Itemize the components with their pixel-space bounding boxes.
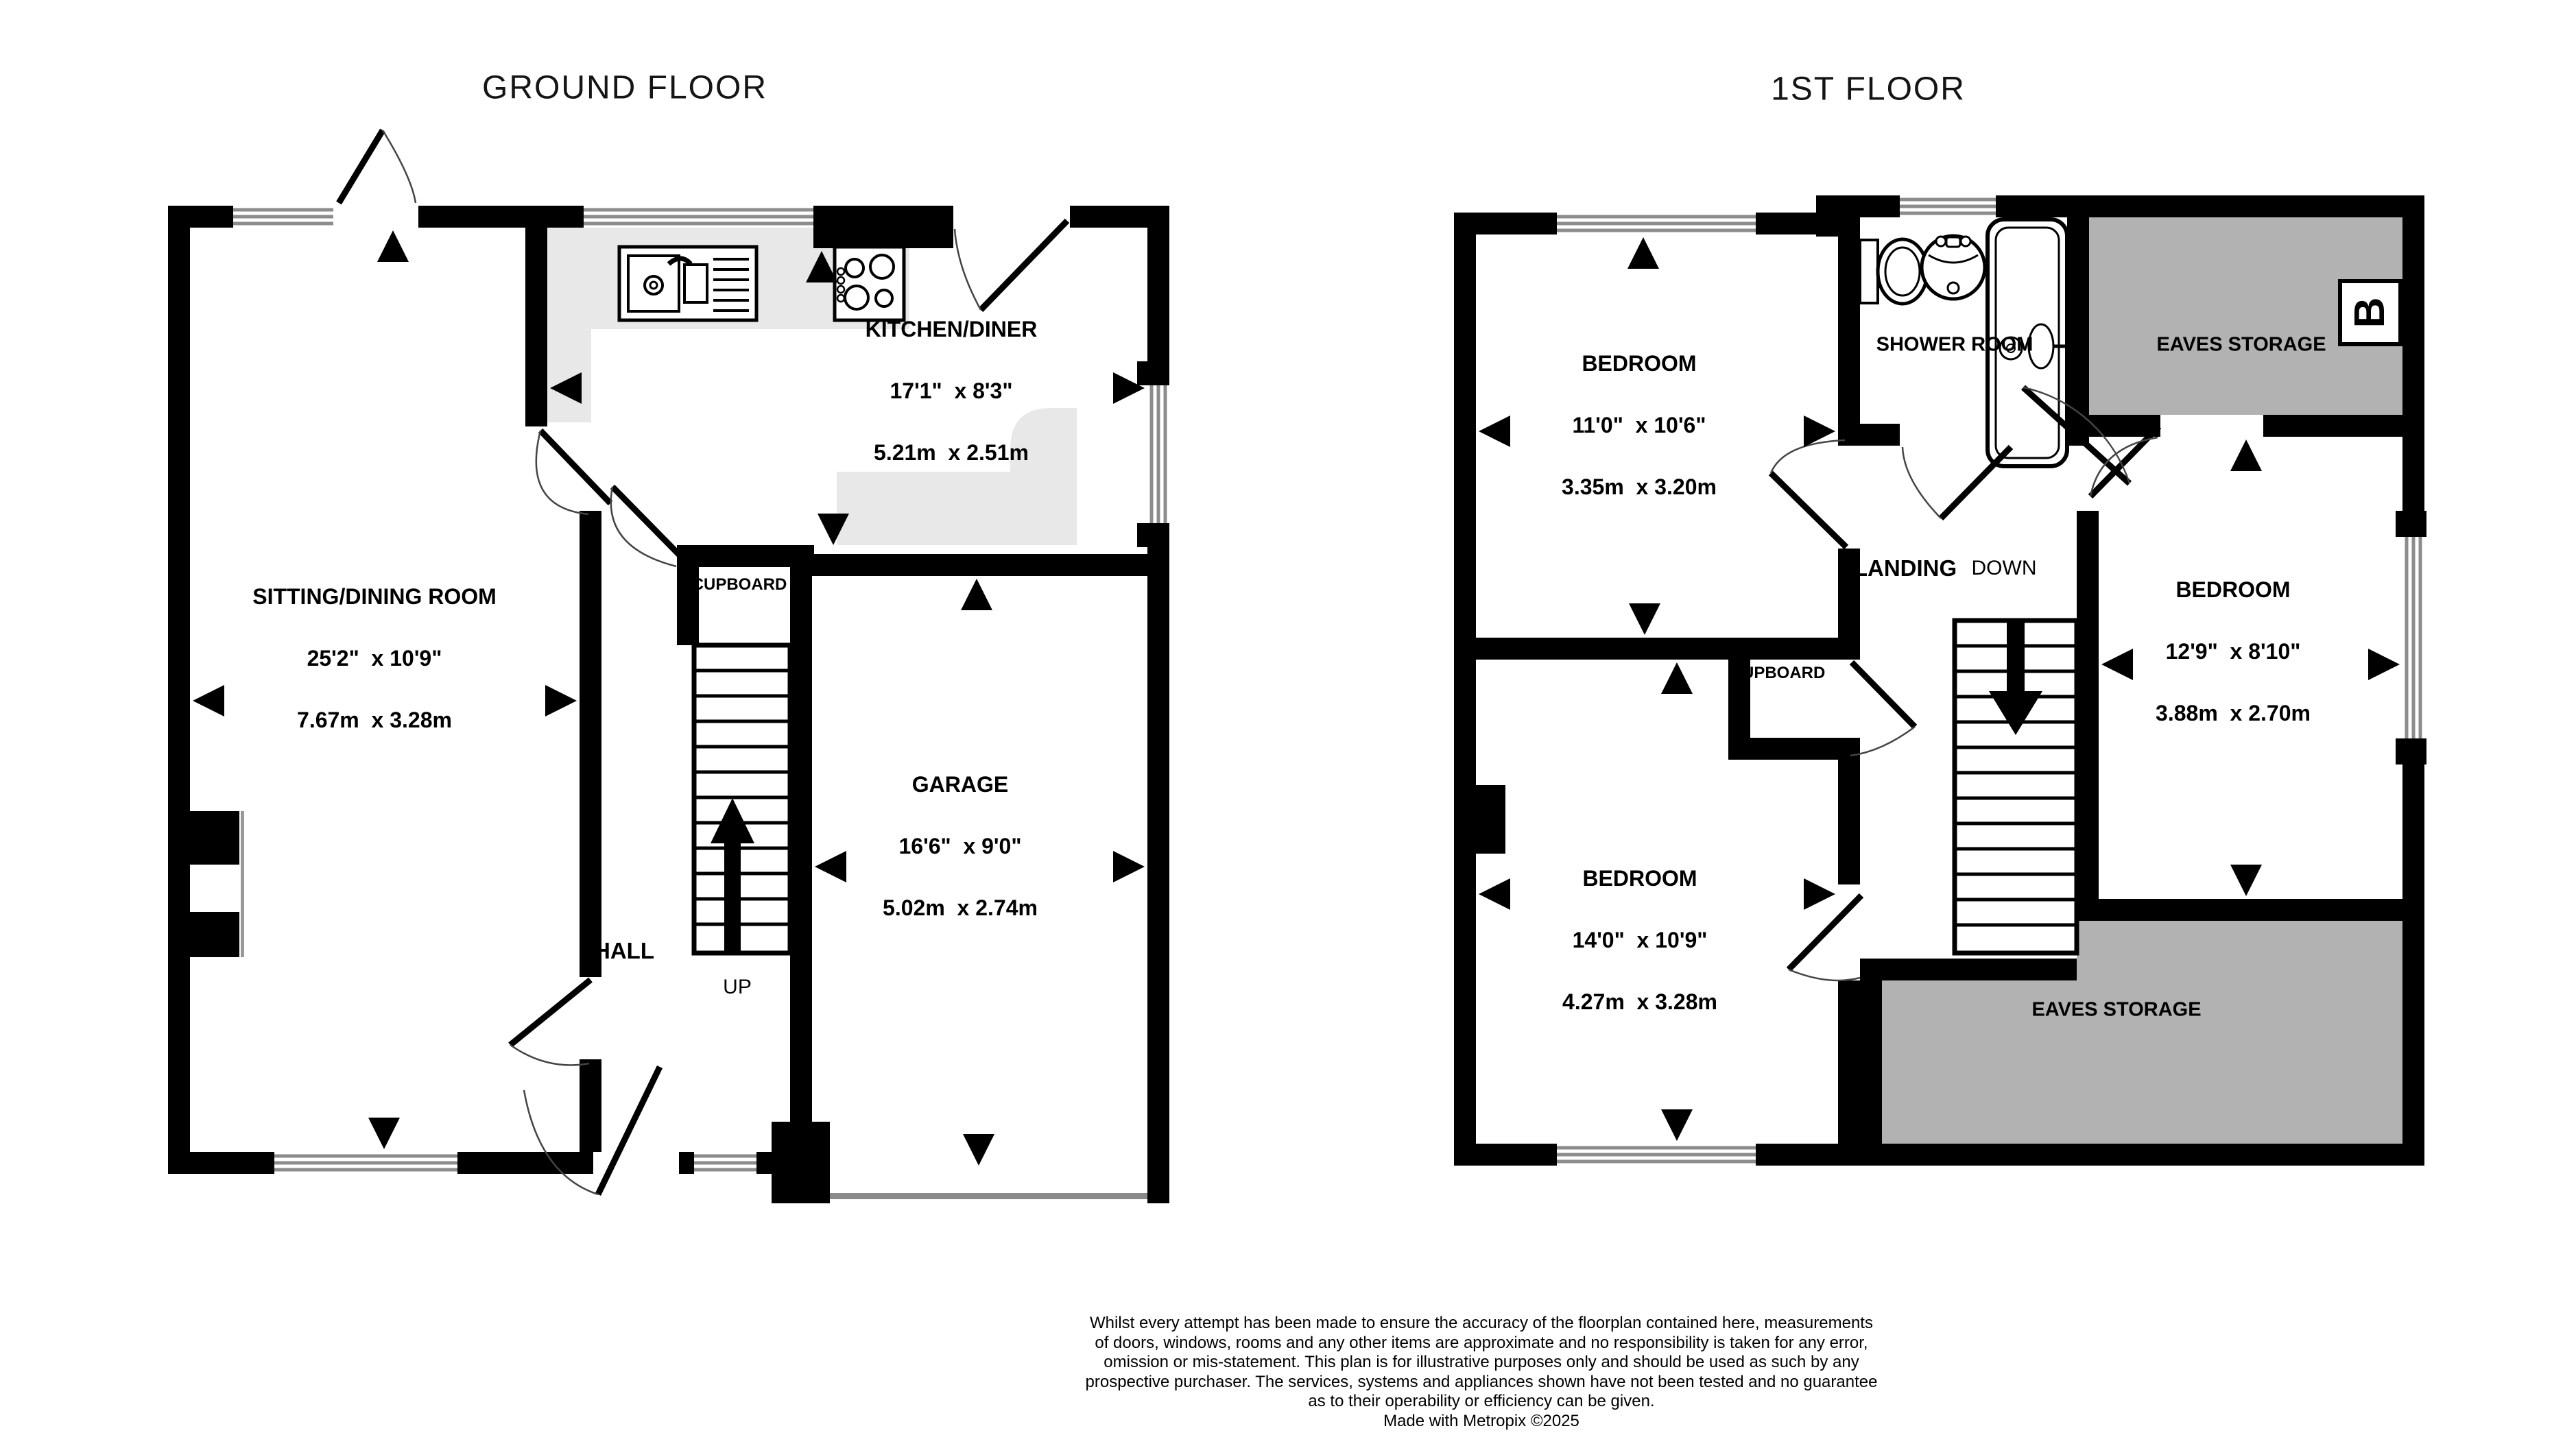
floorplan-page: GROUND FLOOR 1ST FLOOR SITTING/DINING RO… <box>0 0 2576 1433</box>
eaves-storage-top-label: EAVES STORAGE <box>2156 334 2326 357</box>
eaves-storage-bottom-label: EAVES STORAGE <box>2031 999 2201 1022</box>
room-dims-imperial: 12'9" x 8'10" <box>2156 641 2311 662</box>
toilet-icon <box>1860 239 1927 304</box>
stairs-up-label: UP <box>723 976 752 999</box>
hall-label: HALL <box>594 938 654 964</box>
room-dims-imperial: 16'6" x 9'0" <box>883 836 1038 856</box>
fireplace <box>190 811 244 957</box>
garage-label: GARAGE 16'6" x 9'0" 5.02m x 2.74m <box>883 733 1038 959</box>
room-dims-imperial: 11'0" x 10'6" <box>1562 415 1717 435</box>
room-name: SITTING/DINING ROOM <box>252 586 497 607</box>
room-dims-metric: 4.27m x 3.28m <box>1562 991 1717 1012</box>
room-name: KITCHEN/DINER <box>866 319 1038 339</box>
stairs-up <box>694 645 790 953</box>
room-dims-imperial: 14'0" x 10'9" <box>1562 930 1717 950</box>
bedroom-front-label: BEDROOM 11'0" x 10'6" 3.35m x 3.20m <box>1562 312 1717 538</box>
sitting-dining-room-label: SITTING/DINING ROOM 25'2" x 10'9" 7.67m … <box>252 545 497 771</box>
disclaimer-line: omission or mis-statement. This plan is … <box>1032 1353 1931 1373</box>
disclaimer-line: Whilst every attempt has been made to en… <box>1032 1314 1931 1334</box>
disclaimer-line: as to their operability or efficiency ca… <box>1032 1392 1931 1412</box>
kitchen-sink-icon <box>619 247 756 320</box>
room-name: BEDROOM <box>1562 353 1717 374</box>
room-dims-metric: 3.88m x 2.70m <box>2156 703 2311 723</box>
ground-cupboard-label: CUPBOARD <box>692 575 787 594</box>
disclaimer-text: Whilst every attempt has been made to en… <box>1032 1314 1931 1431</box>
first-cupboard-label: CUPBOARD <box>1730 664 1826 683</box>
disclaimer-line: prospective purchaser. The services, sys… <box>1032 1373 1931 1393</box>
landing-label: LANDING <box>1854 555 1957 581</box>
stairs-down-label: DOWN <box>1972 557 2037 580</box>
ground-floor-title: GROUND FLOOR <box>482 69 767 107</box>
room-dims-metric: 7.67m x 3.28m <box>252 710 497 730</box>
room-dims-metric: 5.02m x 2.74m <box>883 898 1038 918</box>
metropix-logo-letter: B <box>2349 298 2392 328</box>
room-name: BEDROOM <box>1562 868 1717 889</box>
room-dims-imperial: 17'1" x 8'3" <box>866 381 1038 401</box>
shower-room-label: SHOWER ROOM <box>1876 334 2034 357</box>
stairs-down <box>1955 621 2077 953</box>
basin-icon <box>1922 236 1985 299</box>
room-dims-metric: 5.21m x 2.51m <box>866 442 1038 463</box>
room-name: BEDROOM <box>2156 579 2311 600</box>
room-dims-metric: 3.35m x 3.20m <box>1562 477 1717 497</box>
room-name: GARAGE <box>883 774 1038 795</box>
disclaimer-line: of doors, windows, rooms and any other i… <box>1032 1334 1931 1353</box>
room-dims-imperial: 25'2" x 10'9" <box>252 648 497 669</box>
garage-door-line <box>830 1193 1147 1199</box>
kitchen-diner-label: KITCHEN/DINER 17'1" x 8'3" 5.21m x 2.51m <box>866 278 1038 504</box>
bedroom-side-label: BEDROOM 12'9" x 8'10" 3.88m x 2.70m <box>2156 538 2311 764</box>
first-floor-title: 1ST FLOOR <box>1771 71 1966 108</box>
bedroom-back-label: BEDROOM 14'0" x 10'9" 4.27m x 3.28m <box>1562 827 1717 1053</box>
disclaimer-credit: Made with Metropix ©2025 <box>1032 1412 1931 1432</box>
